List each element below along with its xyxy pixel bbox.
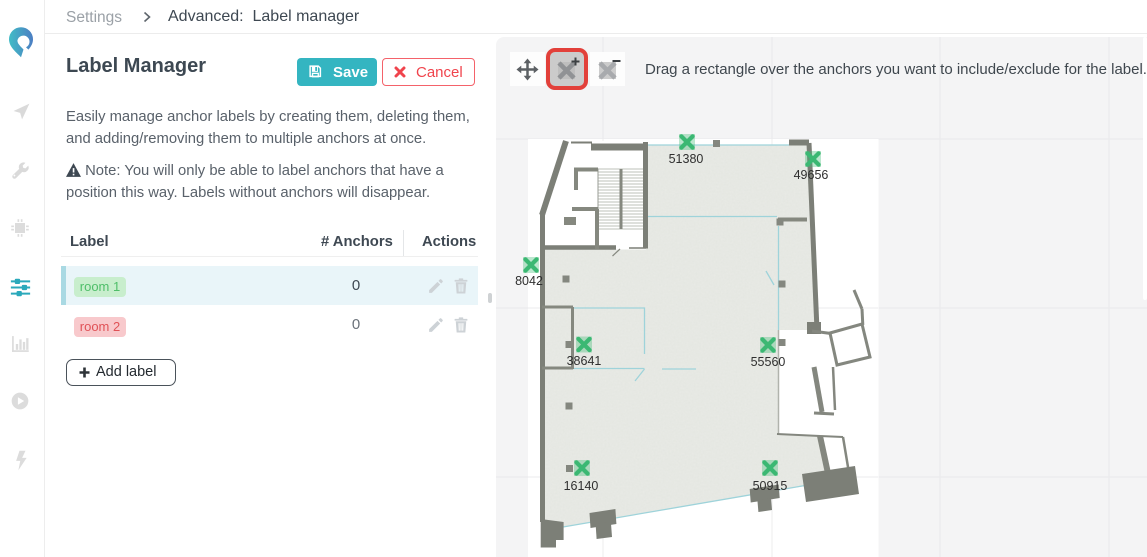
svg-text:8042: 8042 — [515, 274, 543, 288]
svg-text:50915: 50915 — [753, 479, 788, 493]
svg-text:55560: 55560 — [751, 355, 786, 369]
svg-text:38641: 38641 — [567, 354, 602, 368]
svg-text:51380: 51380 — [669, 152, 704, 166]
svg-text:16140: 16140 — [564, 479, 599, 493]
svg-text:49656: 49656 — [794, 168, 829, 182]
